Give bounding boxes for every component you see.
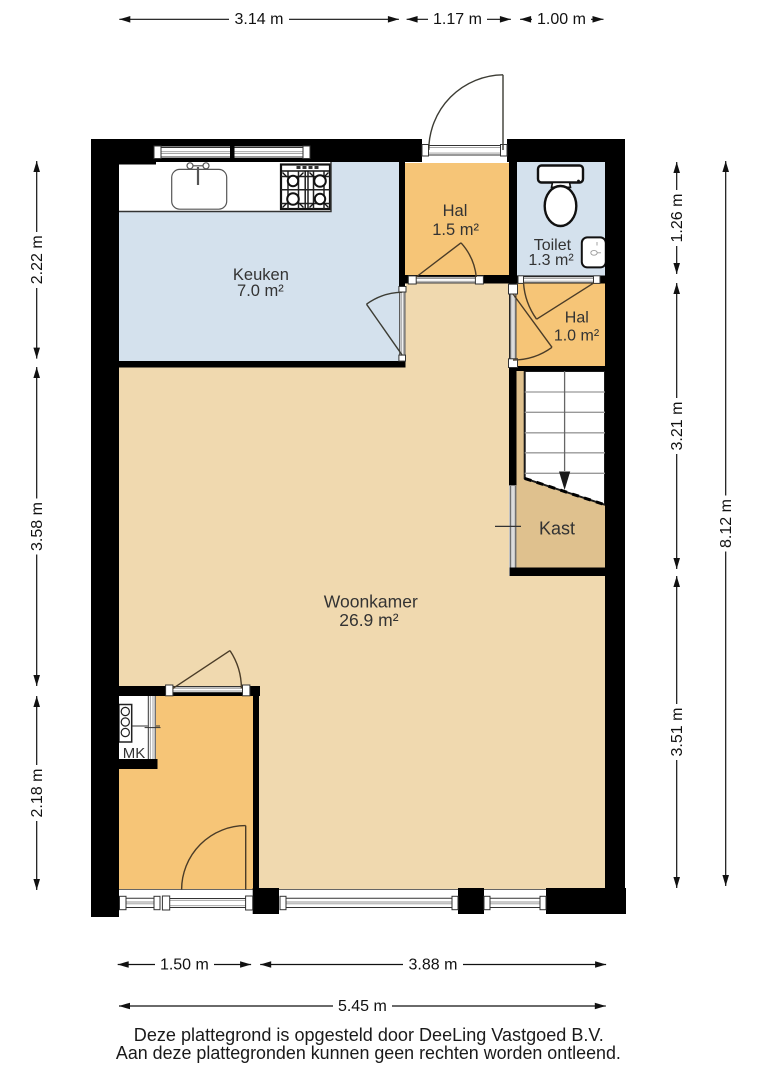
svg-text:1.50 m: 1.50 m <box>160 957 209 974</box>
svg-text:MK: MK <box>123 745 146 762</box>
svg-text:8.12 m: 8.12 m <box>718 499 735 548</box>
svg-text:1.3 m²: 1.3 m² <box>528 252 574 269</box>
svg-text:1.5 m²: 1.5 m² <box>432 221 479 239</box>
svg-text:2.18 m: 2.18 m <box>29 769 46 818</box>
svg-text:Hal: Hal <box>565 310 589 327</box>
svg-text:7.0 m²: 7.0 m² <box>237 282 284 300</box>
svg-text:3.51 m: 3.51 m <box>669 708 686 757</box>
svg-text:3.21 m: 3.21 m <box>669 402 686 451</box>
svg-text:Woonkamer: Woonkamer <box>324 591 418 611</box>
svg-text:3.88 m: 3.88 m <box>409 957 458 974</box>
svg-text:1.00 m: 1.00 m <box>537 11 586 28</box>
svg-text:3.58 m: 3.58 m <box>29 502 46 551</box>
svg-text:1.26 m: 1.26 m <box>669 194 686 243</box>
svg-text:5.45 m: 5.45 m <box>338 998 387 1015</box>
svg-text:Aan deze plattegronden kunnen: Aan deze plattegronden kunnen geen recht… <box>116 1043 621 1063</box>
svg-text:2.22 m: 2.22 m <box>29 235 46 284</box>
svg-text:Hal: Hal <box>443 202 468 220</box>
svg-text:26.9 m²: 26.9 m² <box>339 610 398 630</box>
svg-text:1.0 m²: 1.0 m² <box>554 328 600 345</box>
svg-text:3.14 m: 3.14 m <box>235 11 284 28</box>
svg-text:Kast: Kast <box>539 518 575 538</box>
svg-text:1.17 m: 1.17 m <box>433 11 482 28</box>
